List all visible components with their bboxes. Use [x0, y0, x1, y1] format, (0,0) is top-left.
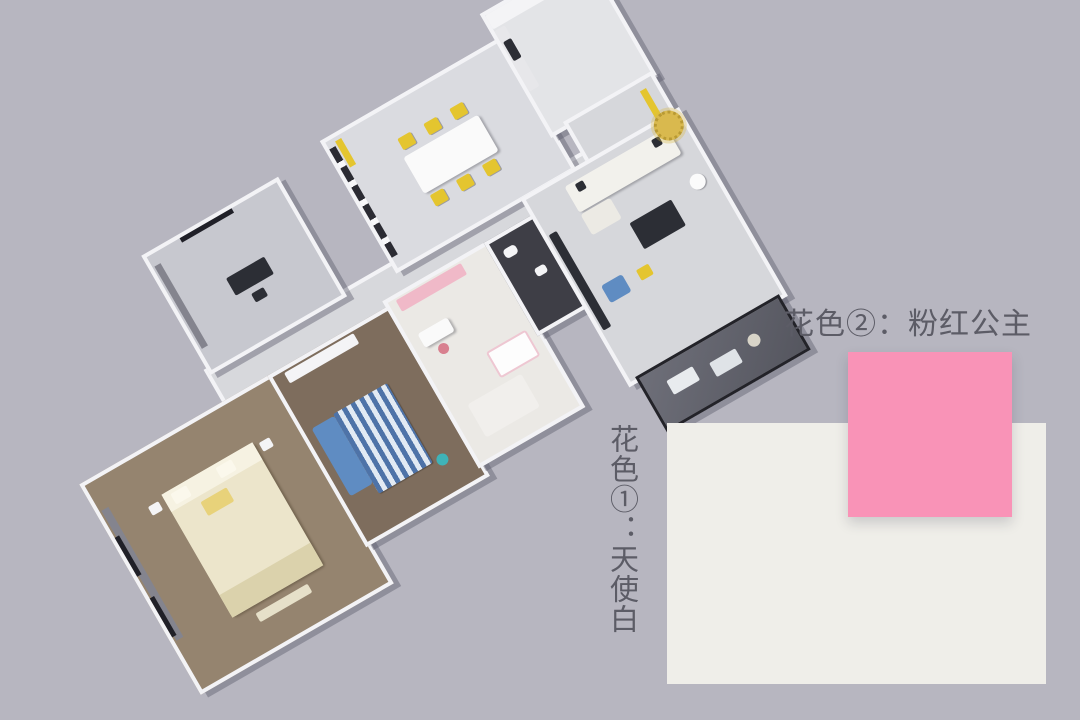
play-rug: [467, 374, 540, 438]
swatch-pink-label: 花色②：粉红公主: [784, 299, 1032, 343]
lounge-chair: [666, 366, 700, 395]
dining-table: [403, 115, 498, 194]
glazed-window-wall: [329, 146, 398, 258]
balcony-table: [745, 331, 763, 349]
crib: [486, 329, 541, 378]
window: [180, 208, 234, 242]
toilet: [502, 244, 519, 260]
desk: [226, 256, 274, 295]
nightstand: [259, 437, 274, 452]
pink-chair: [436, 341, 451, 356]
blue-armchair: [601, 274, 632, 303]
nightstand: [148, 501, 163, 516]
kids-desk: [417, 317, 454, 348]
curtain: [154, 263, 208, 349]
yellow-pouf: [636, 263, 654, 280]
swatch-pink: [848, 352, 1012, 517]
desk-chair: [251, 287, 268, 303]
dining-chair: [430, 188, 449, 207]
dining-chair: [449, 102, 468, 121]
cabinets: [485, 0, 586, 29]
dining-chair: [423, 117, 442, 136]
lounge-chair: [709, 348, 743, 377]
dining-chair: [456, 173, 475, 192]
swatch-white-label: 花色①：天使白: [606, 424, 636, 634]
presentation-canvas: 花色②：粉红公主 花色①：天使白: [0, 0, 1080, 720]
coffee-table: [629, 199, 686, 249]
toy-ball: [434, 451, 450, 467]
dining-chair: [397, 132, 416, 151]
sink: [534, 263, 549, 277]
curtain: [101, 507, 183, 641]
dining-chair: [482, 158, 501, 177]
side-table: [687, 171, 709, 193]
